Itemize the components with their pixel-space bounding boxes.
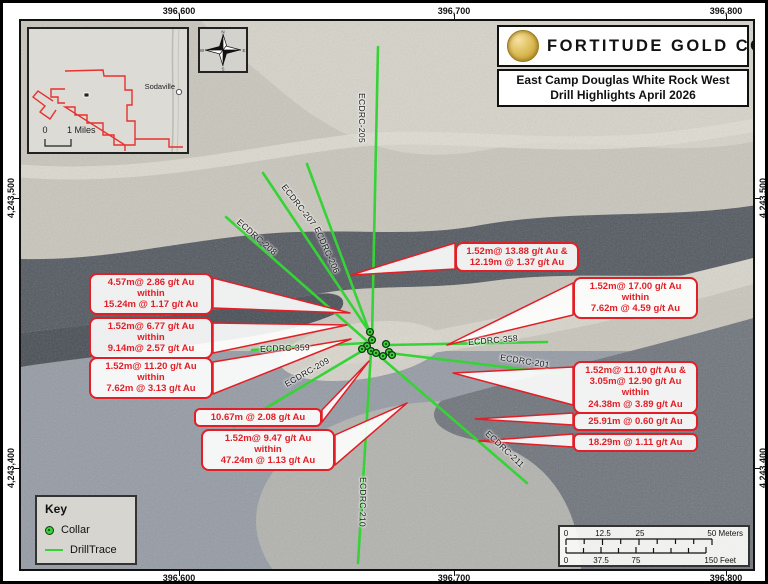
scale-feet-ruler [566,547,706,553]
legend-item-drilltrace: DrillTrace [45,540,127,560]
scale-f-75: 75 [632,556,641,565]
callout-box-7: 1.52m@ 17.00 g/t Au within 7.62m @ 4.59 … [573,277,698,319]
scale-m-50: 50 Meters [707,529,743,538]
callout-box-1: 4.57m@ 2.86 g/t Au within 15.24m @ 1.17 … [89,273,213,315]
map-sheet: 396,600 396,700 396,800 396,600 396,700 … [0,0,768,584]
callout-box-6: 1.52m@ 13.88 g/t Au & 12.19m @ 1.37 g/t … [455,242,579,272]
map-title-block: East Camp Douglas White Rock West Drill … [497,69,749,107]
grid-tick [755,198,760,199]
callout-line: within [94,372,208,383]
drilltrace-symbol-icon [45,549,63,551]
legend-title: Key [45,502,127,516]
callout-box-8: 1.52m@ 11.10 g/t Au & 3.05m@ 12.90 g/t A… [573,361,698,414]
trace-label-ecdrc-359: ECDRC-359 [260,342,310,354]
scale-meters-ruler [566,539,712,545]
inset-scale-zero: 0 [42,125,47,135]
north-arrow: N E S W [198,27,248,73]
satellite-map: ECDRC-205 ECDRC-206 ECDRC-207 ECDRC-208 … [19,19,755,571]
callout-line: 1.52m@ 11.10 g/t Au & [578,365,693,376]
collar-symbol-icon [45,526,54,535]
compass-s: S [221,67,224,72]
scale-m-0: 0 [564,529,569,538]
inset-site-marker [84,93,89,97]
inset-claim-hook [33,91,56,119]
callout-line: within [578,387,693,398]
scale-f-37: 37.5 [593,556,609,565]
inset-claim-south [135,139,183,147]
callout-line: 25.91m @ 0.60 g/t Au [578,416,693,427]
compass-w: W [200,48,205,53]
callout-line: within [94,332,208,343]
callout-line: 1.52m@ 13.88 g/t Au & [460,246,574,257]
compass-e: E [242,48,245,53]
scale-bar: 0 12.5 25 50 Meters 0 37.5 75 150 Feet [558,525,750,567]
compass-n: N [221,30,224,35]
scale-m-12: 12.5 [595,529,611,538]
compass-rose-icon [205,34,241,66]
callout-line: 18.29m @ 1.11 g/t Au [578,437,693,448]
company-name: FORTITUDE GOLD CORP. [547,37,755,56]
inset-claim-arm [51,89,65,103]
callout-box-5: 1.52m@ 9.47 g/t Au within 47.24m @ 1.13 … [201,429,335,471]
callout-line: within [206,444,330,455]
callout-line: within [578,292,693,303]
inset-scale-bracket [45,139,71,146]
callout-box-3: 1.52m@ 11.20 g/t Au within 7.62m @ 3.13 … [89,357,213,399]
trace-label-ecdrc-205: ECDRC-205 [357,93,367,143]
legend-item-collar: Collar [45,520,127,540]
grid-tick [454,571,455,576]
callout-line: 7.62m @ 3.13 g/t Au [94,383,208,394]
callout-line: 1.52m@ 17.00 g/t Au [578,281,693,292]
callout-box-4: 10.67m @ 2.08 g/t Au [194,408,322,427]
legend-drilltrace-label: DrillTrace [70,544,117,556]
callout-line: 15.24m @ 1.17 g/t Au [94,299,208,310]
inset-town-dot [176,89,181,94]
scale-f-150: 150 Feet [704,556,736,565]
callout-line: 1.52m@ 11.20 g/t Au [94,361,208,372]
callout-line: 10.67m @ 2.08 g/t Au [199,412,317,423]
legend: Key Collar DrillTrace [35,495,137,565]
company-logo-block: FORTITUDE GOLD CORP. [497,25,749,67]
map-title-line2: Drill Highlights April 2026 [550,88,696,103]
callout-box-2: 1.52m@ 6.77 g/t Au within 9.14m@ 2.57 g/… [89,317,213,359]
trace-label-ecdrc-210: ECDRC-210 [358,477,369,527]
callout-line: 4.57m@ 2.86 g/t Au [94,277,208,288]
scale-m-25: 25 [636,529,645,538]
inset-claim-boundary [65,70,135,151]
callout-line: 12.19m @ 1.37 g/t Au [460,257,574,268]
scale-f-0: 0 [564,556,569,565]
callout-line: 47.24m @ 1.13 g/t Au [206,455,330,466]
callout-line: 1.52m@ 9.47 g/t Au [206,433,330,444]
callout-line: 3.05m@ 12.90 g/t Au [578,376,693,387]
inset-town-label: Sodaville [145,82,175,91]
callout-box-10: 18.29m @ 1.11 g/t Au [573,433,698,452]
callout-line: 9.14m@ 2.57 g/t Au [94,343,208,354]
grid-tick [179,571,180,576]
inset-location-map: Sodaville 0 1 Miles [27,27,189,154]
inset-scale-label: 1 Miles [67,125,96,135]
callout-box-9: 25.91m @ 0.60 g/t Au [573,412,698,431]
callout-line: within [94,288,208,299]
grid-tick [726,571,727,576]
grid-tick [755,468,760,469]
legend-collar-label: Collar [61,524,90,536]
callout-line: 1.52m@ 6.77 g/t Au [94,321,208,332]
callout-line: 24.38m @ 3.89 g/t Au [578,399,693,410]
callout-line: 7.62m @ 4.59 g/t Au [578,303,693,314]
map-title-line1: East Camp Douglas White Rock West [516,73,729,88]
gold-coin-icon [507,30,539,62]
